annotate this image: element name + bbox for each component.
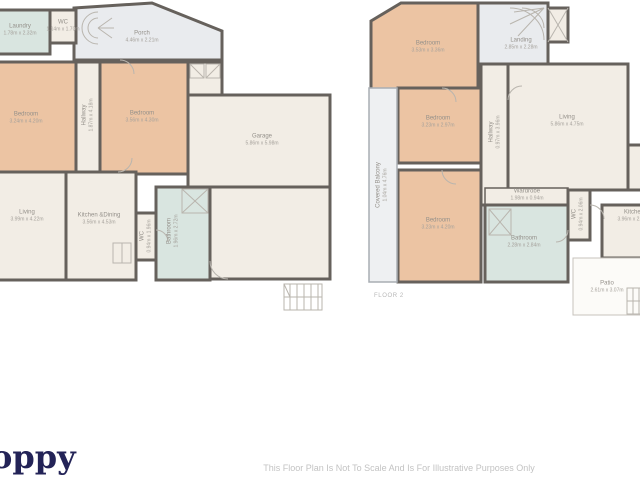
room-patio-shape — [573, 258, 640, 315]
room-rear-shape — [210, 187, 330, 279]
room-wardrobe-shape — [485, 188, 568, 205]
room-landing-shape — [478, 3, 548, 67]
room-porch-shape — [74, 3, 222, 60]
room-kitchen1-shape — [66, 172, 136, 280]
steps-grid-icon — [284, 284, 322, 310]
room-bedroom-c-shape — [398, 170, 481, 282]
room-wc-small-shape — [136, 213, 156, 260]
room-covered-balcony-shape — [369, 88, 397, 282]
room-living1-shape — [0, 172, 66, 280]
floor-plan-1 — [0, 0, 340, 320]
room-bathroom2-shape — [485, 205, 568, 282]
room-bedroom-b-shape — [398, 88, 481, 163]
plan1-walls — [0, 3, 330, 280]
floor-plan-2 — [362, 0, 640, 320]
floor-2-label: FLOOR 2 — [374, 293, 404, 299]
room-bedroom-a-shape — [371, 3, 478, 95]
room-wc-top-shape — [50, 10, 76, 43]
room-living2-shape — [508, 64, 628, 190]
room-hallway2-shape — [481, 64, 508, 205]
room-kitchen2-shape — [602, 205, 640, 258]
room-garage-shape — [188, 95, 330, 187]
room-bedroom1-shape — [0, 62, 76, 172]
room-hallway1-shape — [76, 62, 100, 172]
floorplan-page: Laundry 1.78m x 2.32m WC 1.14m x 1.70m P… — [0, 0, 640, 480]
brand-logo: oppy — [0, 438, 76, 476]
disclaimer-text: This Floor Plan Is Not To Scale And Is F… — [263, 463, 534, 473]
room-living2-nib-shape — [628, 145, 640, 190]
room-wc2-shape — [568, 190, 590, 240]
plan2-walls — [371, 3, 640, 282]
room-laundry-shape — [0, 10, 50, 54]
room-bedroom2-shape — [100, 62, 188, 174]
